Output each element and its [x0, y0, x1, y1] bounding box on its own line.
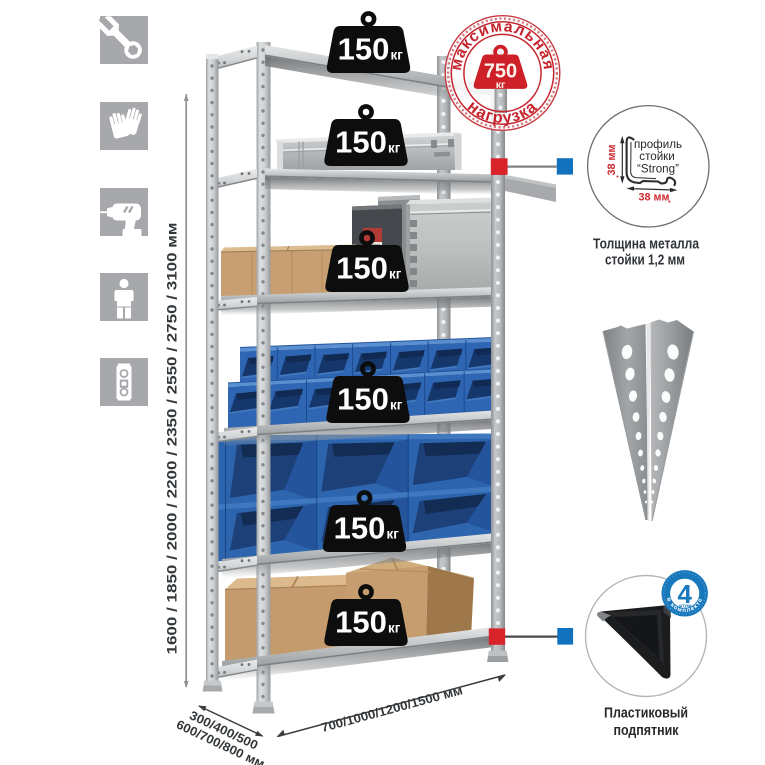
- svg-text:Толщина металла: Толщина металла: [593, 237, 700, 253]
- svg-text:Пластиковый: Пластиковый: [604, 706, 688, 722]
- svg-text:“Strong”: “Strong”: [637, 162, 679, 175]
- svg-text:стойки 1,2 мм: стойки 1,2 мм: [605, 252, 685, 268]
- svg-text:профиль: профиль: [634, 138, 682, 151]
- svg-text:подпятник: подпятник: [614, 723, 679, 739]
- svg-text:стойки: стойки: [639, 150, 674, 163]
- svg-text:38 мм: 38 мм: [606, 145, 618, 176]
- svg-text:кг: кг: [496, 79, 506, 91]
- svg-text:38 мм: 38 мм: [639, 192, 670, 204]
- svg-text:1600 / 1850 / 2000 / 2200 / 23: 1600 / 1850 / 2000 / 2200 / 2350 / 2550 …: [165, 223, 180, 655]
